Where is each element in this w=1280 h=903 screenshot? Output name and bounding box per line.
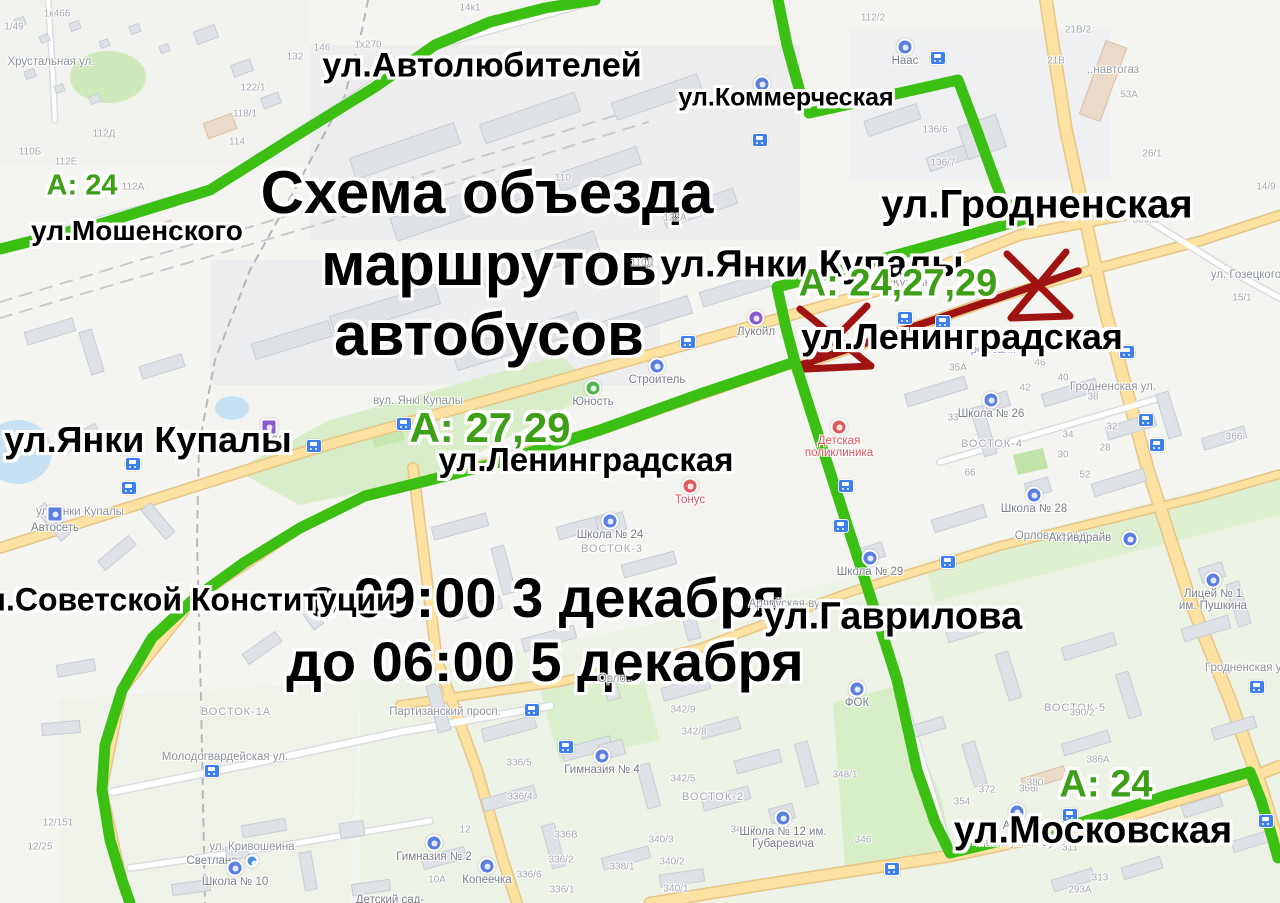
building-number: 46	[1034, 358, 1045, 369]
poi-icon	[1205, 572, 1222, 589]
poi-label: им. Пушкина	[1179, 600, 1247, 612]
street-label-small: Партизанский просп.	[389, 706, 501, 718]
street-label: ул.Автолюбителей	[322, 47, 641, 86]
building-number: 21В	[1047, 56, 1065, 67]
poi-label: поликлиника	[805, 447, 873, 459]
building-number: 14к1	[459, 3, 480, 14]
district-label: ВОСТОК-1А	[201, 706, 271, 718]
street-label-small: ул. Кривошеина	[209, 841, 294, 853]
building-number: 32	[1106, 422, 1117, 433]
building-number: 26/1	[1142, 149, 1161, 160]
building-number: 40	[1057, 373, 1068, 384]
building-number: 354	[954, 797, 971, 808]
building-number: 38	[1087, 392, 1098, 403]
street-label: ул.Мошенского	[31, 215, 243, 247]
route-number-label: А: 24,27,29	[799, 263, 998, 306]
poi-label: Детская	[818, 435, 861, 447]
building-number: 112А	[122, 182, 145, 193]
street-label-small: Орло..	[598, 673, 633, 685]
poster-dates-line-2: до 06:00 5 декабря	[286, 629, 803, 694]
building-number: 114	[229, 137, 245, 148]
poi-label: ФОК	[845, 697, 869, 709]
street-label-small: Гродненская ул.	[1205, 662, 1280, 674]
poi-label: Школа № 12 им.	[739, 826, 826, 838]
poi-icon	[227, 860, 244, 877]
bus-stop-icon	[838, 479, 854, 493]
building-number: 118/1	[233, 109, 257, 120]
poi-icon	[983, 392, 1000, 409]
building-number: 42	[1019, 383, 1030, 394]
poi-label: Школа № 29	[837, 566, 903, 578]
bus-stop-icon	[1258, 814, 1274, 828]
building-number: 293А	[1068, 885, 1091, 896]
bus-stop-icon	[752, 133, 768, 147]
street-label: ул.Гродненская	[881, 183, 1193, 228]
building-number: 372	[979, 785, 996, 796]
building-number: 66	[964, 468, 975, 479]
poi-label: Гимназия № 4	[564, 764, 640, 776]
building-number: 110Б	[19, 147, 42, 158]
street-label-small: ул. Гозецкого	[1211, 269, 1280, 281]
poi-label: Школа № 26	[958, 408, 1024, 420]
bus-stop-icon	[1249, 680, 1265, 694]
building-number: 342/8	[681, 727, 706, 738]
poi-icon	[1026, 487, 1043, 504]
building-number: 14/9	[1256, 182, 1275, 193]
district-label: ВОСТОК-2	[682, 791, 744, 803]
poi-label: Лукойл	[737, 326, 775, 338]
street-label: ул.Советской Конституции	[0, 582, 396, 619]
bus-stop-icon	[1149, 438, 1165, 452]
building-number: 336/4	[507, 792, 532, 803]
building-number: 12	[459, 825, 470, 836]
building-number: 336В	[554, 830, 577, 841]
building-number: 340/2	[659, 857, 684, 868]
poi-label: Школа № 24	[577, 529, 643, 541]
building-number: 30	[1057, 450, 1068, 461]
poster-title-line-1: Схема объезда	[261, 158, 714, 227]
bus-stop-icon	[833, 519, 849, 533]
district-label: ВОСТОК-3	[581, 543, 643, 555]
building-number: 112Е	[55, 157, 78, 168]
poi-label: Школа № 10	[202, 876, 268, 888]
bus-stop-icon	[121, 481, 137, 495]
building-number: 342/9	[670, 705, 695, 716]
poi-icon	[831, 419, 848, 436]
street-label: ул.Коммерческая	[678, 84, 893, 113]
poi-icon	[479, 858, 496, 875]
building-number: 122А	[663, 213, 686, 224]
poi-label: Копеечка	[462, 874, 511, 886]
building-number: 15/1	[1232, 293, 1251, 304]
poi-label: Губаревича	[752, 838, 814, 850]
route-number-label: А: 27,29	[409, 404, 570, 452]
poi-icon	[585, 380, 602, 397]
poi-icon	[748, 310, 765, 327]
building-number: 110	[555, 173, 571, 184]
building-number: 28	[1099, 443, 1110, 454]
building-number: 342/5	[670, 774, 695, 785]
street-label-small: Гродненская ул.	[1070, 381, 1156, 393]
poster-title-line-3: автобусов	[334, 300, 644, 369]
poi-label: Строитель	[629, 374, 686, 386]
bus-stop-icon	[680, 335, 696, 349]
building-number: 1/49	[4, 22, 23, 33]
street-label-small: Молодогвардейская ул.	[162, 751, 288, 763]
poi-label: ..навтогаз	[1087, 64, 1139, 76]
poi-icon	[682, 478, 699, 495]
building-number: 34	[1062, 430, 1073, 441]
map-labels-layer: Схема объезда маршрутов автобусов с 09:0…	[0, 0, 1280, 903]
poi-icon	[1122, 531, 1139, 548]
poi-label: Тонус	[675, 494, 705, 506]
poi-label: Юность	[572, 396, 613, 408]
route-number-label: А: 24	[1060, 764, 1153, 807]
poi-label: Детский сад-	[356, 894, 424, 903]
building-number: 348/1	[832, 770, 857, 781]
poi-icon	[47, 506, 64, 523]
building-number: 336/1	[549, 885, 574, 896]
building-number: 1к466	[44, 9, 71, 20]
poi-icon	[426, 835, 443, 852]
poi-label: Лицей № 1	[1184, 588, 1242, 600]
building-number: 53А	[1120, 90, 1138, 101]
building-number: 380	[1027, 778, 1044, 789]
bus-stop-icon	[558, 740, 574, 754]
street-label: ул.Московская	[954, 810, 1232, 853]
building-number: 340/1	[663, 884, 688, 895]
building-number: 313	[1092, 873, 1109, 884]
building-number: 112/2	[861, 13, 885, 24]
street-label: ул.Гаврилова	[764, 596, 1022, 639]
bus-stop-icon	[930, 51, 946, 65]
building-number: 21В/2	[1065, 25, 1091, 36]
street-label: ул.Янки Купалы	[4, 419, 292, 461]
detour-map-poster: Схема объезда маршрутов автобусов с 09:0…	[0, 0, 1280, 903]
building-number: 112Д	[93, 129, 116, 140]
building-number: 346	[855, 835, 872, 846]
bus-stop-icon	[524, 703, 540, 717]
building-number: 122/1	[240, 83, 265, 94]
building-number: 336/5	[506, 758, 531, 769]
district-label: ВОСТОК-4	[961, 438, 1023, 450]
bus-stop-icon	[1138, 413, 1154, 427]
bus-stop-icon	[204, 764, 220, 778]
bus-stop-icon	[306, 439, 322, 453]
poi-label: Наас	[892, 55, 919, 67]
street-label: ул.Ленинградская	[801, 316, 1123, 358]
building-number: 12/151	[43, 818, 74, 829]
poi-icon	[649, 358, 666, 375]
street-label-small: Хрустальная ул.	[7, 56, 94, 68]
building-number: 132	[287, 52, 304, 63]
poi-icon	[246, 855, 259, 868]
building-number: 12/25	[27, 842, 52, 853]
poi-label: Автосеть	[31, 522, 79, 534]
poi-icon	[862, 550, 879, 567]
building-number: 336/6	[516, 870, 541, 881]
poi-icon	[897, 39, 914, 56]
poi-icon	[602, 513, 619, 530]
poi-label: Гимназия № 2	[396, 851, 472, 863]
route-number-label: А: 24	[47, 170, 118, 203]
poi-icon	[849, 681, 866, 698]
poi-label: Школа № 28	[1001, 503, 1067, 515]
building-number: 338/1	[609, 862, 634, 873]
building-number: 136/7	[930, 158, 955, 169]
building-number: 340/3	[648, 835, 673, 846]
bus-stop-icon	[940, 555, 956, 569]
building-number: 336/2	[548, 855, 573, 866]
poster-title-line-2: маршрутов	[321, 230, 657, 299]
building-number: 35А	[949, 363, 967, 374]
poi-icon	[594, 748, 611, 765]
building-number: 10А	[428, 875, 446, 886]
poi-label: Активдрайв	[1049, 532, 1112, 544]
building-number: 136/6	[922, 125, 947, 136]
building-number: 110Д	[631, 258, 654, 269]
bus-stop-icon	[884, 862, 900, 876]
building-number: 366	[1226, 432, 1243, 443]
building-number: 52	[1079, 470, 1090, 481]
building-number: 390/2	[1069, 708, 1094, 719]
poi-icon	[775, 810, 792, 827]
